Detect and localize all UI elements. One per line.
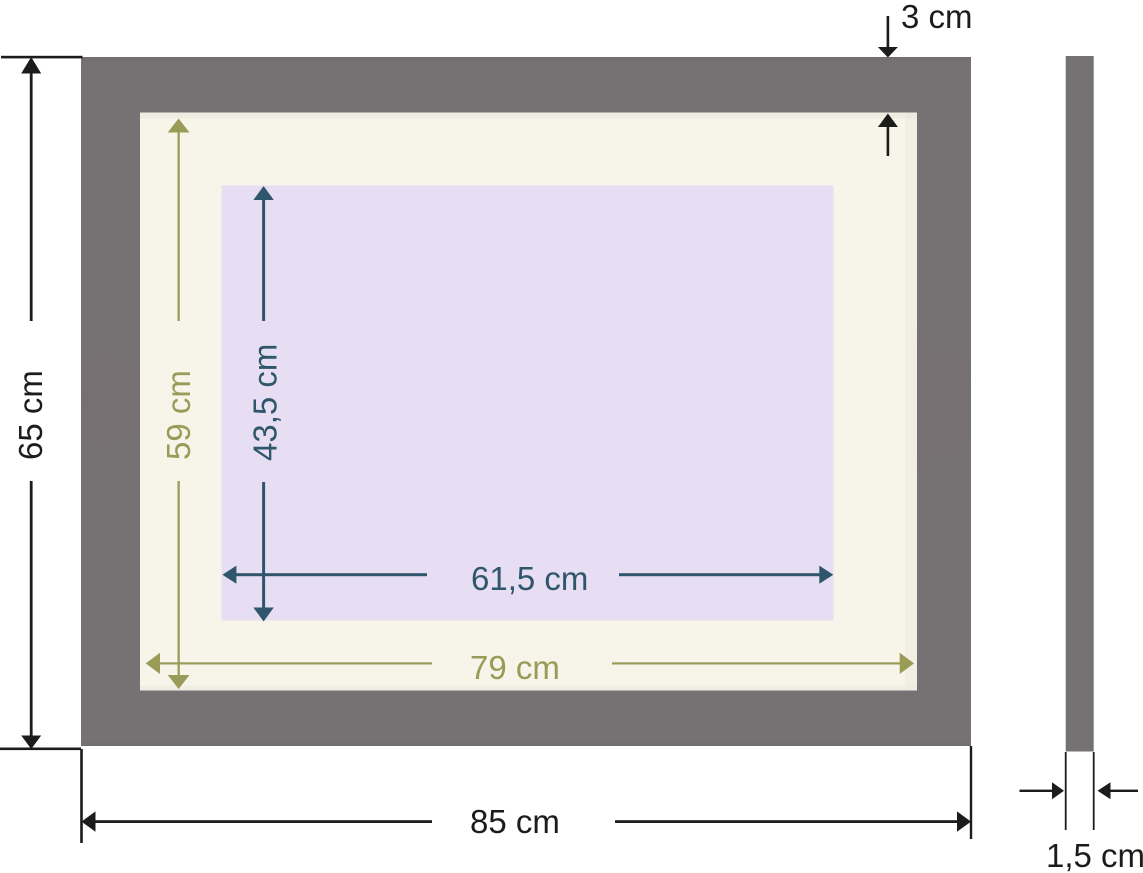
svg-text:59 cm: 59 cm xyxy=(160,370,197,460)
svg-text:79 cm: 79 cm xyxy=(470,649,560,686)
svg-text:85 cm: 85 cm xyxy=(470,803,560,840)
svg-text:43,5 cm: 43,5 cm xyxy=(247,344,284,461)
svg-text:61,5 cm: 61,5 cm xyxy=(471,560,588,597)
svg-text:1,5 cm: 1,5 cm xyxy=(1046,837,1143,873)
svg-text:65 cm: 65 cm xyxy=(12,370,49,460)
svg-text:3 cm: 3 cm xyxy=(901,0,973,35)
